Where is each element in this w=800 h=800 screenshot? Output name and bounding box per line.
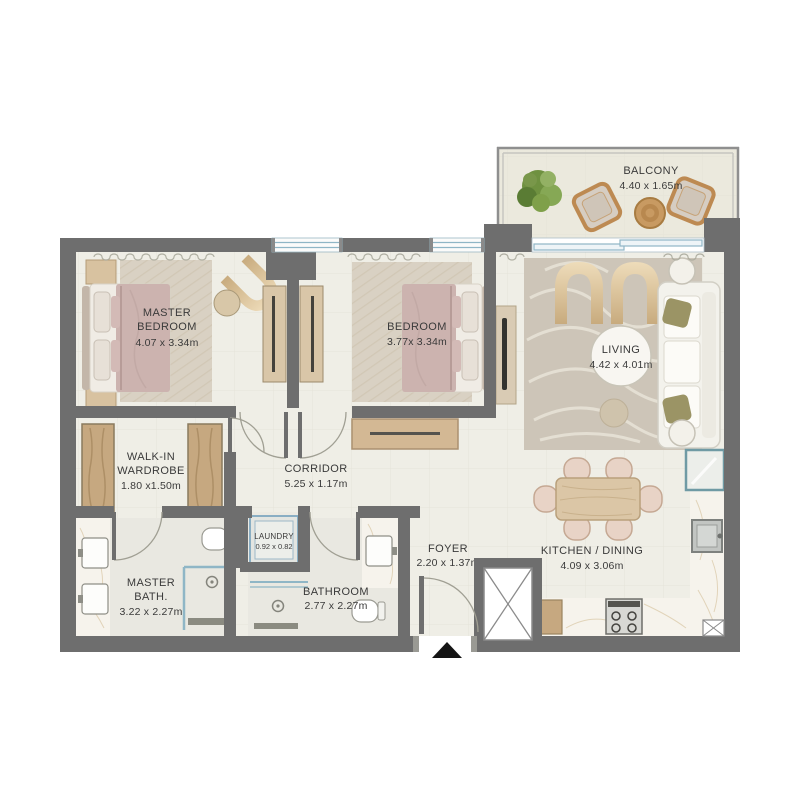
wall-elevator-left: [474, 558, 484, 642]
wall-master-bottom: [76, 406, 236, 418]
wall-laundry-bottom: [240, 562, 310, 572]
foyer-dims: 2.20 x 1.37m: [416, 557, 479, 569]
master-bath-label-1: MASTER: [127, 577, 175, 589]
master-vanity-counter: [76, 518, 110, 636]
master-bedroom-dims: 4.07 x 3.34m: [135, 337, 198, 349]
balcony-table-icon: [635, 198, 665, 228]
faucet-3: [392, 547, 397, 555]
wardrobe-label-2: WARDROBE: [117, 465, 185, 477]
wardrobe-label-1: WALK-IN: [127, 451, 175, 463]
floor-plan-page: BALCONY 4.40 x 1.65m MASTER: [0, 0, 800, 800]
marble-side-table-top: [669, 258, 695, 284]
room-living: LIVING 4.42 x 4.01m: [496, 258, 720, 450]
living-dims: 4.42 x 4.01m: [589, 359, 652, 371]
sofa-pillow-2: [662, 394, 693, 425]
wall-balcony-stub-left: [484, 224, 532, 252]
bathroom-label: BATHROOM: [303, 586, 369, 598]
wall-elevator-top: [474, 558, 542, 568]
sink-icon-2: [82, 584, 108, 614]
stove-icon: [606, 599, 642, 634]
dining-table-icon: [556, 478, 640, 520]
bathroom-dims: 2.77 x 2.27m: [304, 600, 367, 612]
master-bedroom-label-2: BEDROOM: [137, 321, 197, 333]
wall-spine: [287, 280, 299, 408]
entrance-jamb-left: [413, 636, 419, 652]
wall-wardrobe-right: [224, 452, 236, 506]
window-master: [272, 238, 342, 252]
sink-icon: [82, 538, 108, 568]
laundry-label: LAUNDRY: [254, 532, 294, 541]
bedroom-dims: 3.77x 3.34m: [387, 336, 447, 348]
elevator-shaft: [484, 568, 532, 640]
wall-masterbath-right: [224, 506, 236, 636]
wardrobe-handle: [272, 296, 275, 372]
tv-console-icon: [496, 306, 516, 404]
entrance-door-leaf: [419, 576, 424, 634]
fridge-icon: [686, 450, 724, 490]
closet-right-icon: [188, 424, 222, 514]
master-bath-label-2: BATH.: [134, 591, 168, 603]
wall-top-left: [60, 238, 272, 252]
room-balcony: BALCONY 4.40 x 1.65m: [497, 147, 739, 244]
living-label: LIVING: [602, 344, 640, 356]
wardrobe-dims: 1.80 x1.50m: [121, 480, 181, 492]
wall-foyer-left: [398, 518, 410, 636]
balcony-sliding-door: [532, 238, 704, 252]
dresser-icon: [352, 419, 458, 449]
wardrobe-handle-2: [311, 296, 314, 372]
wall-spine-block: [266, 252, 316, 280]
floor-plan-canvas: BALCONY 4.40 x 1.65m MASTER: [0, 0, 800, 800]
wall-corridor-1: [76, 506, 114, 518]
wall-bedroom-bottom: [352, 406, 484, 418]
window-bedroom: [430, 238, 484, 252]
wall-elevator-right: [532, 558, 542, 642]
service-shaft: [703, 620, 724, 636]
nightstand-top: [86, 260, 116, 284]
faucet-2: [78, 595, 83, 603]
wall-top-mid: [342, 238, 430, 252]
marble-side-table-bottom: [669, 420, 695, 446]
master-bath-dims: 3.22 x 2.27m: [119, 606, 182, 618]
entrance-jamb-right: [471, 636, 477, 652]
corridor-dims: 5.25 x 1.17m: [284, 478, 347, 490]
wall-living-divider: [484, 252, 496, 418]
side-table-icon: [214, 290, 240, 316]
room-bedroom: BEDROOM 3.77x 3.34m: [352, 262, 490, 402]
corridor-label: CORRIDOR: [284, 463, 347, 475]
master-bedroom-label-1: MASTER: [143, 307, 191, 319]
foyer-label: FOYER: [428, 543, 468, 555]
balcony-dims: 4.40 x 1.65m: [619, 180, 682, 192]
wall-left: [60, 238, 76, 652]
wall-right: [724, 244, 740, 652]
kitchen-dining-dims: 4.09 x 3.06m: [560, 560, 623, 572]
balcony-label: BALCONY: [623, 165, 679, 177]
wall-laundry-left: [236, 506, 248, 568]
sink-icon-3: [366, 536, 392, 566]
bedroom-label: BEDROOM: [387, 321, 447, 333]
kitchen-sink-icon: [692, 520, 723, 552]
laundry-dims: 0.92 x 0.82: [255, 542, 292, 551]
kitchen-counter-right: [690, 490, 724, 636]
wall-laundry-right: [298, 506, 310, 568]
faucet: [78, 549, 83, 557]
kitchen-dining-label: KITCHEN / DINING: [541, 545, 643, 557]
wall-bottom-left: [60, 636, 413, 652]
pouf-icon: [600, 399, 628, 427]
coffee-table-icon: [591, 326, 651, 386]
wall-corridor-4: [358, 506, 420, 518]
closet-left-icon: [82, 424, 114, 514]
